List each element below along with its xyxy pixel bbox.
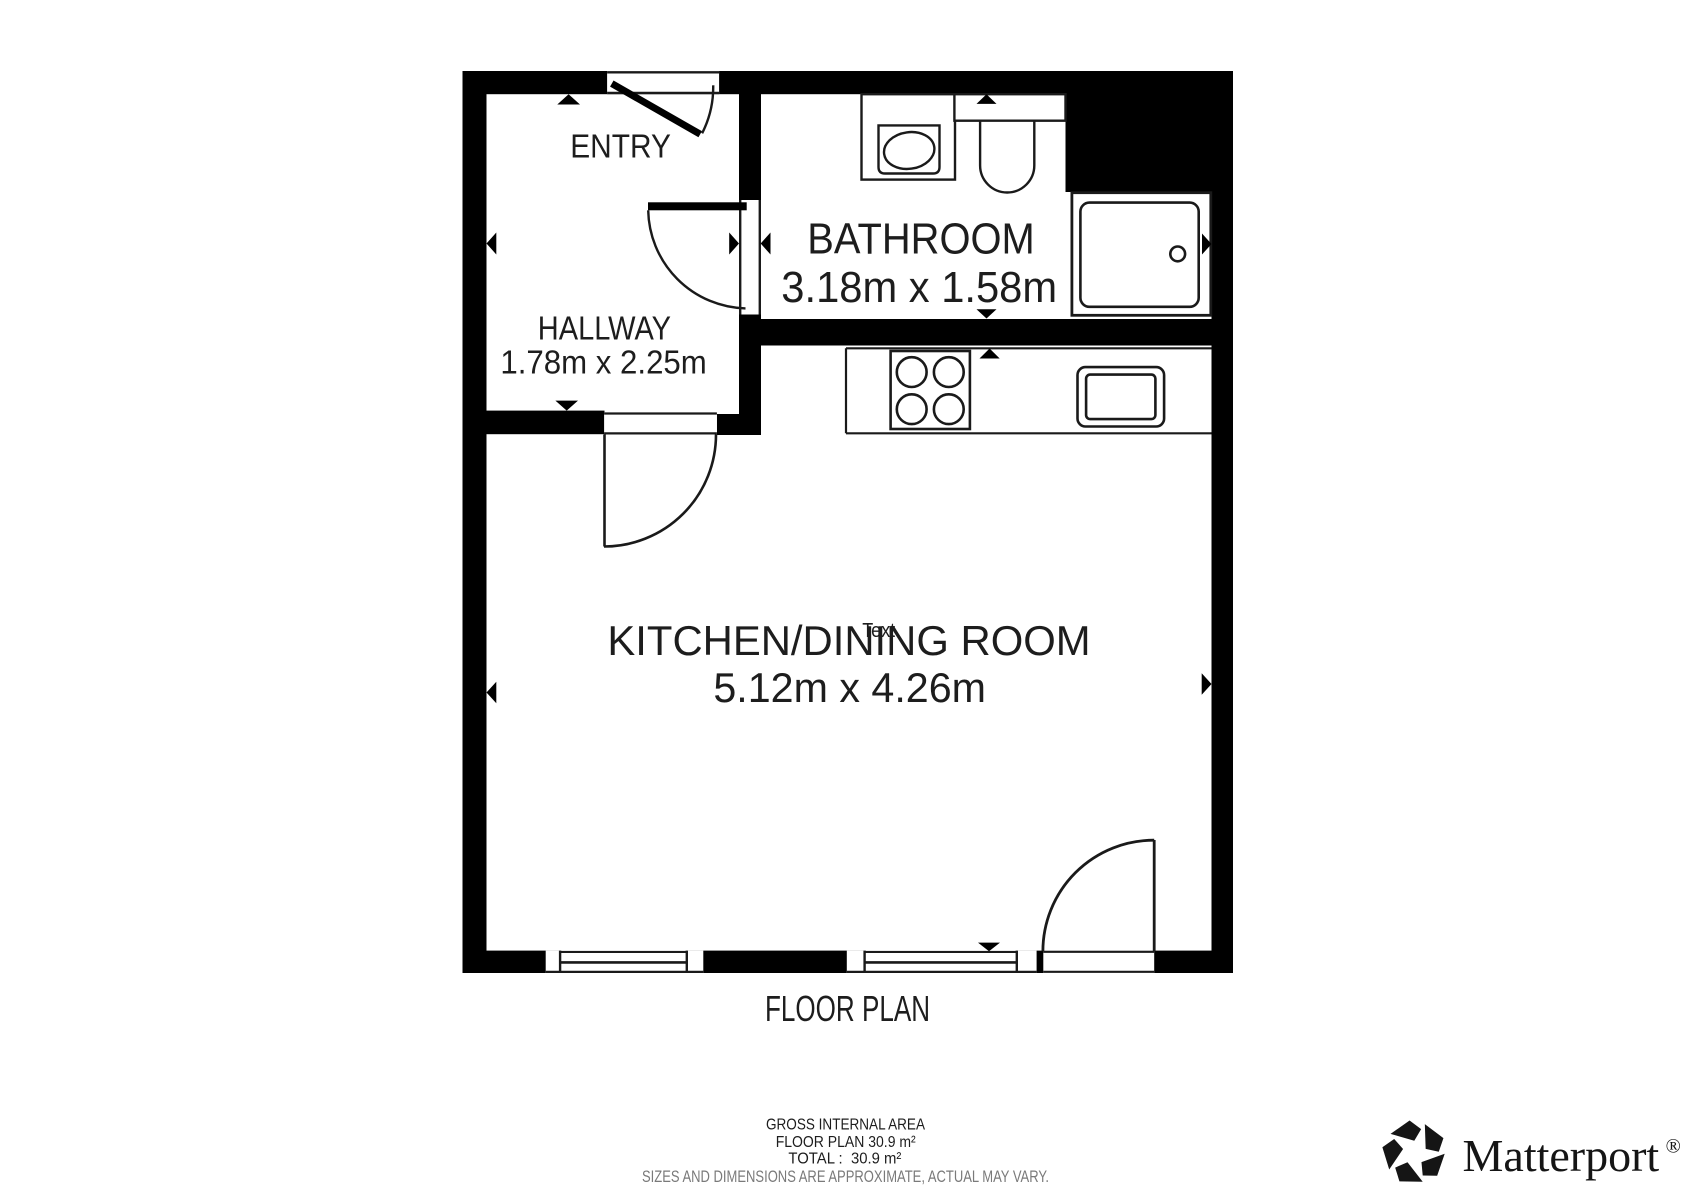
svg-text:Matterport: Matterport: [1463, 1130, 1660, 1181]
svg-text:FLOOR PLAN: FLOOR PLAN: [765, 988, 930, 1029]
svg-text:1.78m x 2.25m: 1.78m x 2.25m: [500, 344, 706, 381]
svg-text:GROSS INTERNAL AREA: GROSS INTERNAL AREA: [766, 1116, 925, 1133]
svg-text:TOTAL : 30.9 m²: TOTAL : 30.9 m²: [788, 1150, 902, 1167]
svg-text:3.18m x 1.58m: 3.18m x 1.58m: [781, 263, 1057, 312]
svg-text:FLOOR PLAN 30.9 m²: FLOOR PLAN 30.9 m²: [776, 1134, 917, 1151]
svg-text:KITCHEN/DINING ROOM: KITCHEN/DINING ROOM: [607, 617, 1090, 664]
svg-text:BATHROOM: BATHROOM: [807, 215, 1034, 264]
svg-text:SIZES AND DIMENSIONS ARE APPRO: SIZES AND DIMENSIONS ARE APPROXIMATE, AC…: [642, 1168, 1049, 1186]
svg-text:5.12m x 4.26m: 5.12m x 4.26m: [713, 664, 986, 711]
svg-text:®: ®: [1666, 1136, 1681, 1158]
svg-text:HALLWAY: HALLWAY: [538, 310, 671, 347]
svg-text:ENTRY: ENTRY: [570, 128, 671, 165]
